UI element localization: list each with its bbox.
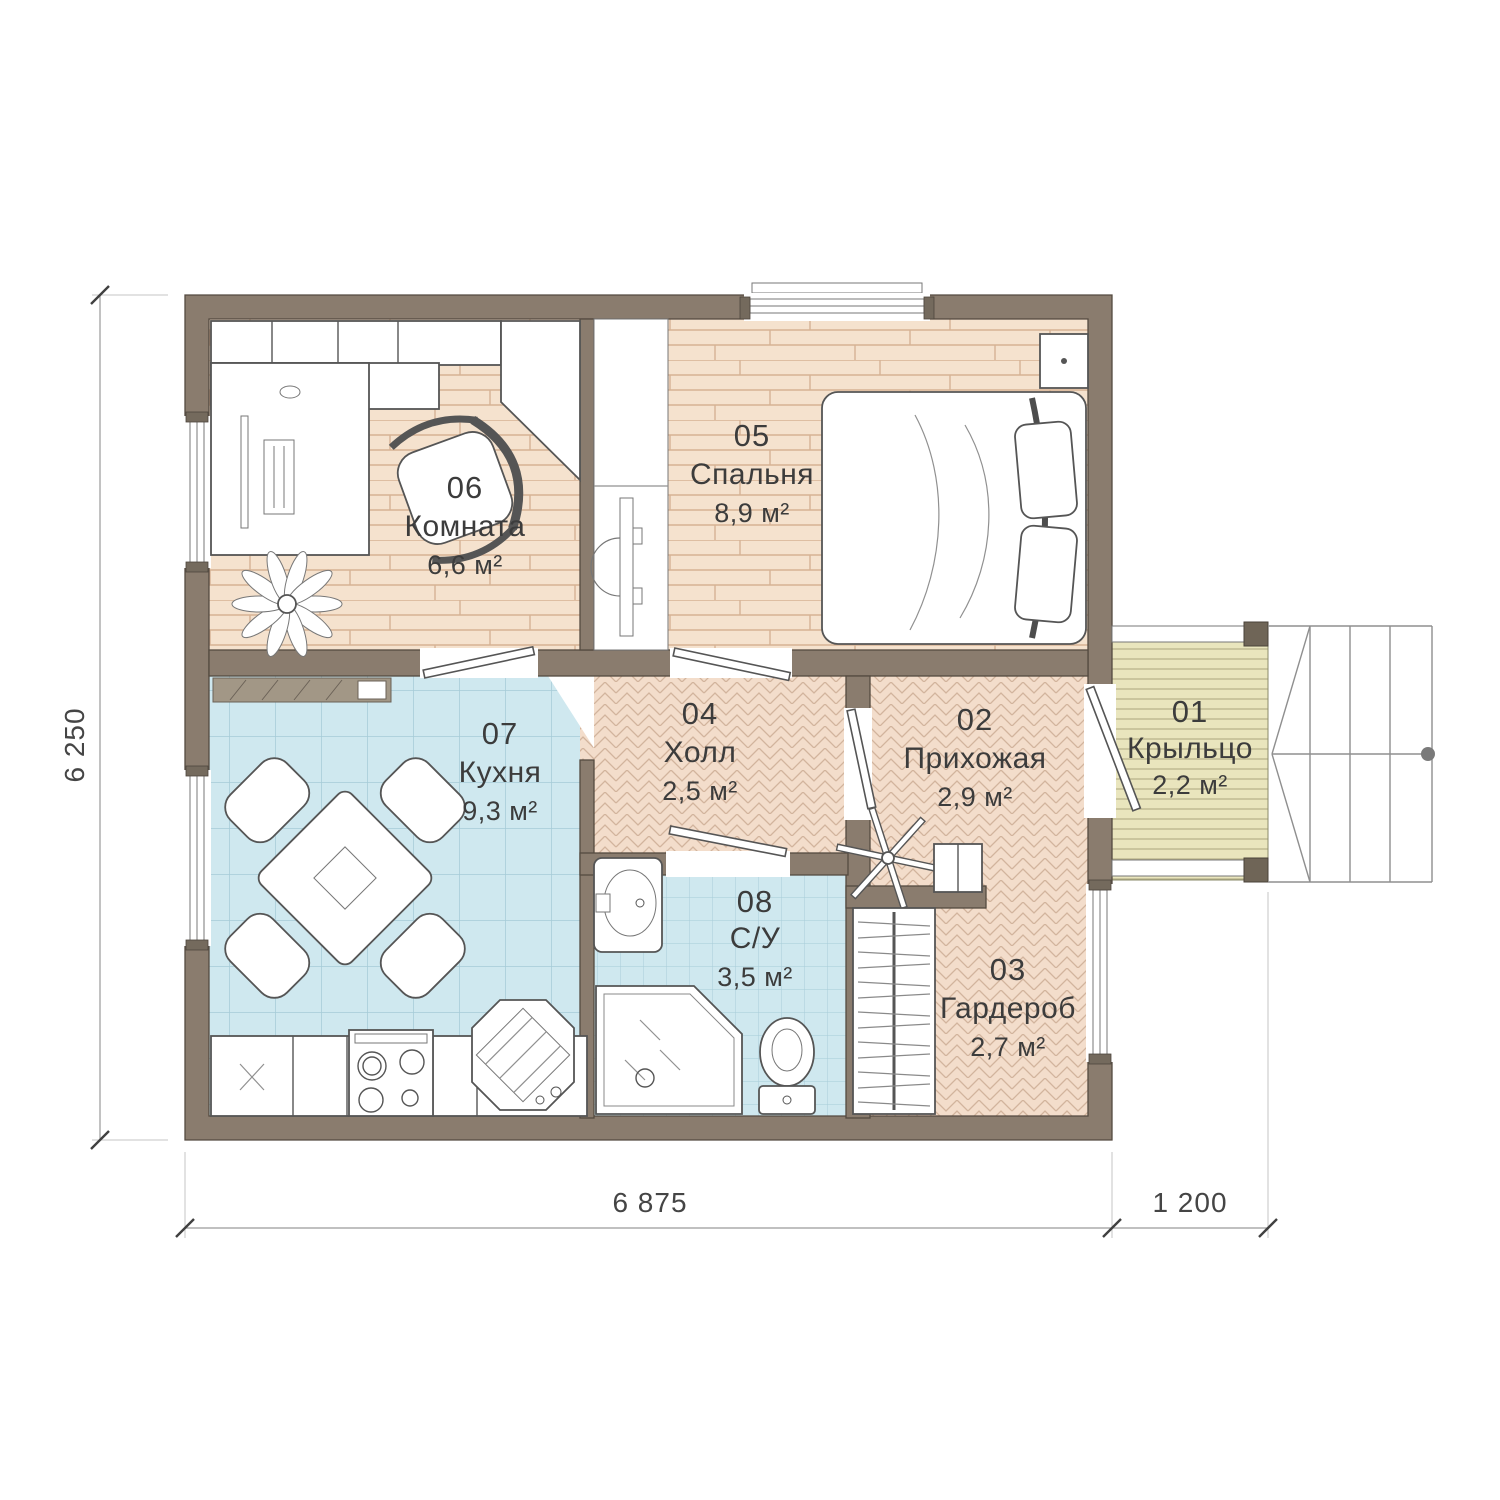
porch-steps xyxy=(1268,626,1435,882)
floor-plan-canvas: 06 Комната 6,6 м² 05 Спальня 8,9 м² 07 К… xyxy=(0,0,1500,1500)
room-number: 03 xyxy=(990,952,1026,987)
wall-top-rooms xyxy=(209,650,1088,676)
room-number: 02 xyxy=(957,702,993,737)
room-name: Кухня xyxy=(459,756,542,789)
wall-06-closet xyxy=(580,319,594,650)
porch-post-bottom xyxy=(1244,858,1268,882)
room-number: 05 xyxy=(734,418,770,453)
window-room06-left xyxy=(183,412,211,572)
corner-sink xyxy=(472,1000,574,1110)
cooker-hood xyxy=(213,678,391,702)
room-number: 01 xyxy=(1172,694,1208,729)
keyboard xyxy=(264,440,294,514)
window-bedroom-top xyxy=(740,283,934,321)
bathroom-sink xyxy=(594,858,662,952)
room-name: Комната xyxy=(405,510,526,543)
wardrobe-rail xyxy=(853,908,935,1114)
shoe-cabinet xyxy=(934,844,982,892)
mouse xyxy=(280,386,300,398)
dimension-left: 6 250 xyxy=(59,286,168,1149)
room-name: Прихожая xyxy=(903,742,1046,775)
room-number: 06 xyxy=(447,470,483,505)
cabinet-row xyxy=(211,321,501,365)
room-area: 2,2 м² xyxy=(1152,770,1228,800)
toilet xyxy=(759,1018,815,1114)
room-number: 07 xyxy=(482,716,518,751)
room-area: 2,9 м² xyxy=(937,782,1013,812)
window-kitchen-left xyxy=(183,766,211,950)
dim-width-main: 6 875 xyxy=(612,1187,687,1218)
room-name: Спальня xyxy=(690,458,814,491)
porch-post-top xyxy=(1244,622,1268,646)
stove xyxy=(349,1030,433,1116)
pillow xyxy=(1014,421,1078,520)
room-name: Крыльцо xyxy=(1127,732,1253,765)
steps-direction-dot xyxy=(1421,747,1435,761)
door-opening-bathroom xyxy=(666,851,790,877)
room-area: 9,3 м² xyxy=(462,796,538,826)
porch-rail-bottom xyxy=(1112,860,1248,876)
room-area: 3,5 м² xyxy=(717,962,793,992)
room-area: 6,6 м² xyxy=(427,550,503,580)
tv-closet xyxy=(591,319,668,650)
window-wardrobe-right xyxy=(1086,880,1114,1064)
room-area: 2,5 м² xyxy=(662,776,738,806)
floor-plan-drawing: 06 Комната 6,6 м² 05 Спальня 8,9 м² 07 К… xyxy=(0,0,1500,1500)
room-name: Холл xyxy=(664,736,737,769)
room-area: 2,7 м² xyxy=(970,1032,1046,1062)
room-number: 08 xyxy=(737,884,773,919)
porch-rail-top xyxy=(1112,626,1248,642)
room-name: Гардероб xyxy=(940,992,1076,1025)
room-number: 04 xyxy=(682,696,718,731)
dim-height-total: 6 250 xyxy=(59,707,90,782)
pillow xyxy=(1014,525,1078,624)
room-name: С/У xyxy=(730,922,781,955)
room-area: 8,9 м² xyxy=(714,498,790,528)
dim-width-porch: 1 200 xyxy=(1152,1187,1227,1218)
tv xyxy=(620,498,633,636)
monitor xyxy=(241,416,248,528)
